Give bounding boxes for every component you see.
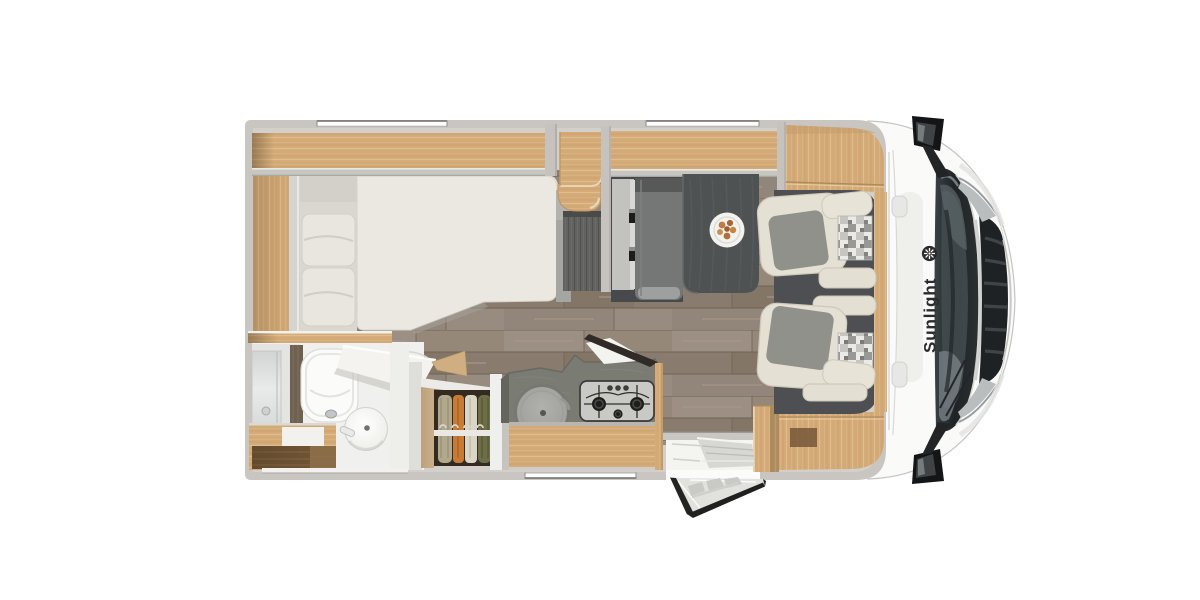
svg-text:Sunlight: Sunlight [921, 278, 940, 353]
